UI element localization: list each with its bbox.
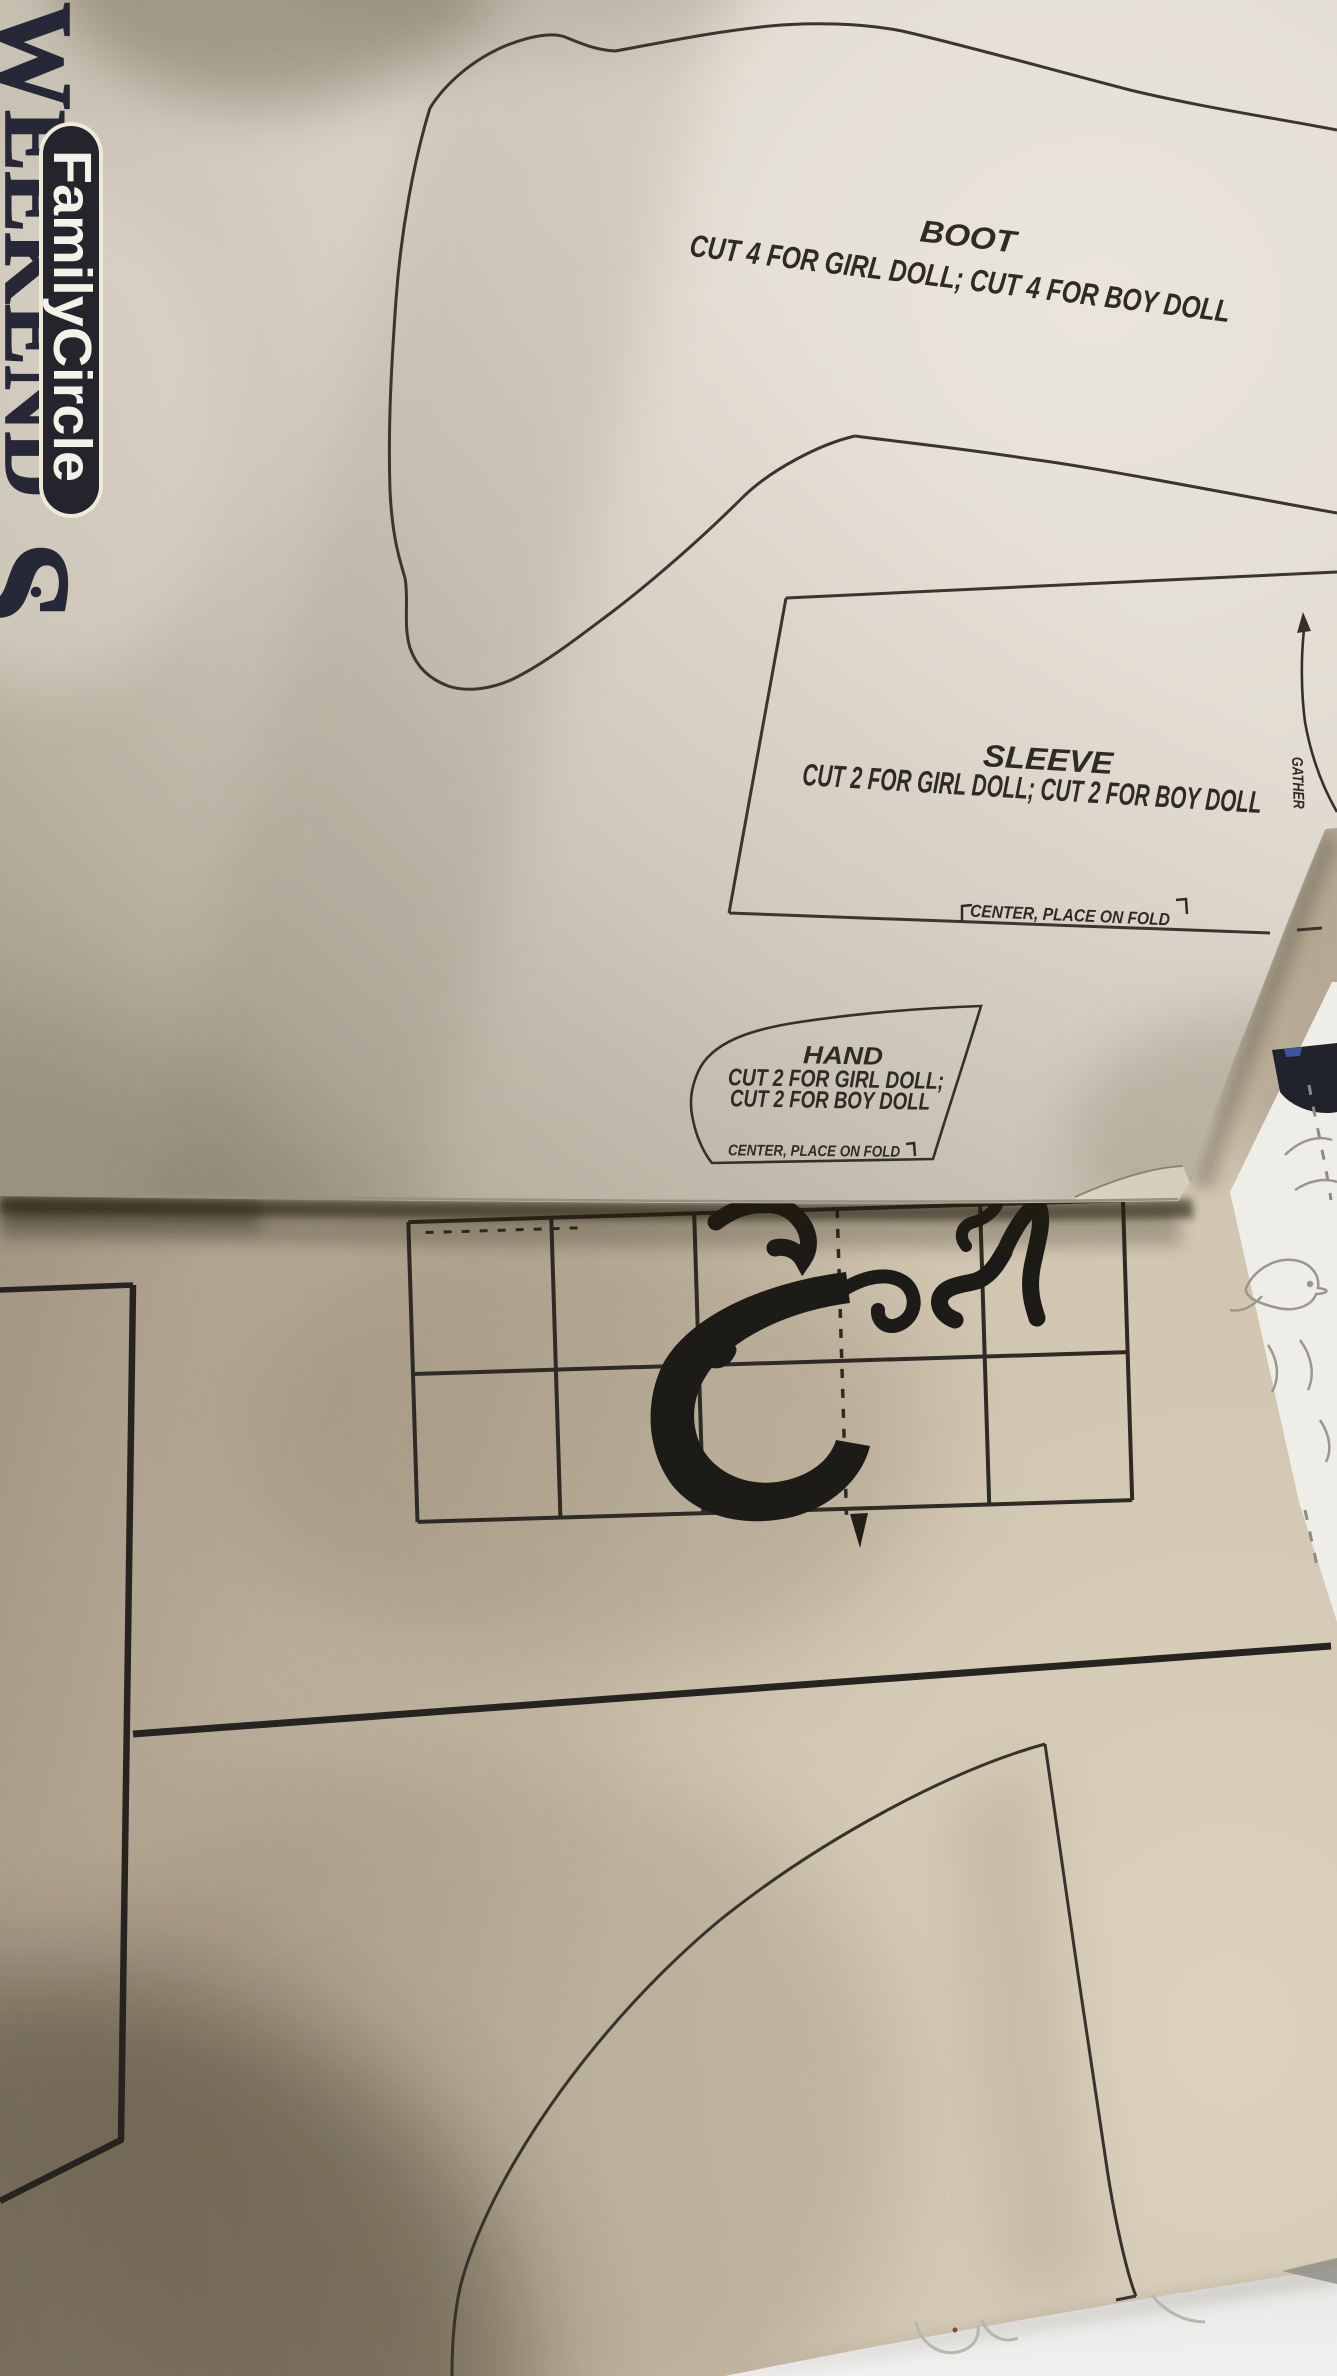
svg-text:S: S <box>0 540 101 623</box>
svg-text:GATHER: GATHER <box>1288 757 1307 810</box>
svg-text:W: W <box>0 2 93 110</box>
svg-text:FamilyCircle: FamilyCircle <box>42 150 102 482</box>
svg-text:CUT 2 FOR BOY DOLL: CUT 2 FOR BOY DOLL <box>730 1085 930 1115</box>
svg-text:CENTER, PLACE ON FOLD: CENTER, PLACE ON FOLD <box>728 1142 900 1161</box>
